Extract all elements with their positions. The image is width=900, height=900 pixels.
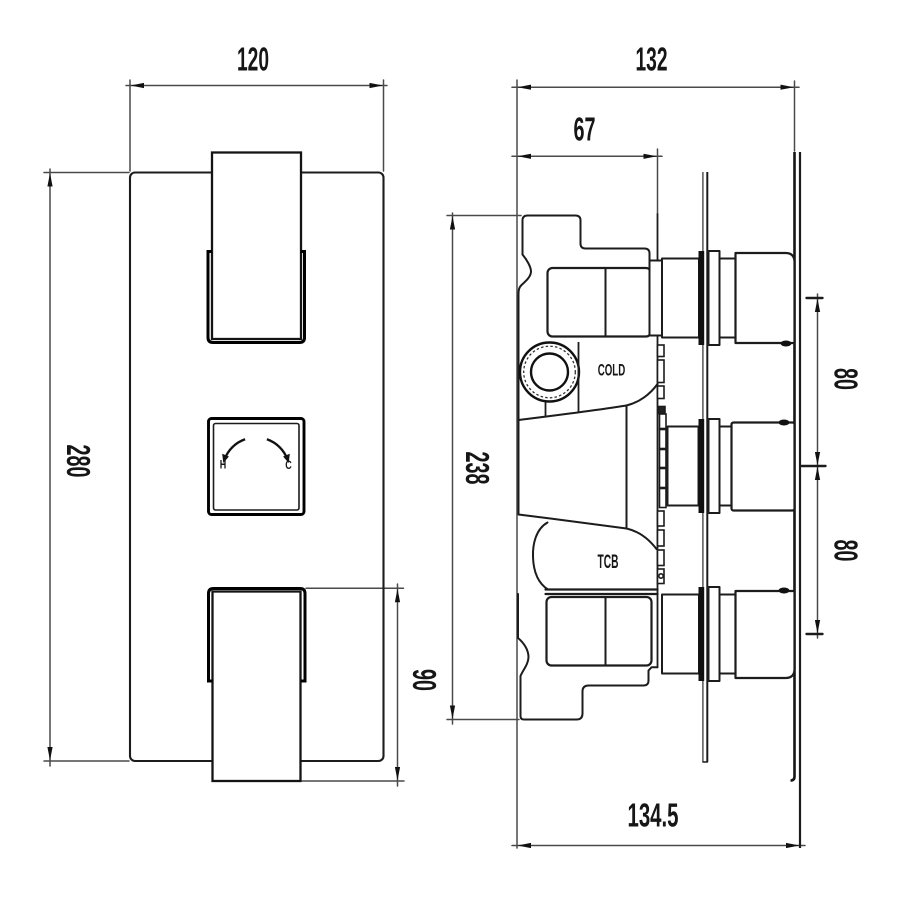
svg-text:67: 67 (574, 111, 596, 148)
svg-text:C: C (285, 458, 292, 472)
svg-text:80: 80 (828, 540, 865, 562)
svg-text:90: 90 (406, 669, 443, 691)
svg-text:COLD: COLD (598, 362, 626, 380)
svg-text:134.5: 134.5 (628, 797, 679, 834)
svg-text:120: 120 (237, 41, 269, 78)
svg-text:H: H (220, 458, 227, 472)
svg-text:132: 132 (636, 41, 668, 78)
svg-text:280: 280 (60, 445, 97, 478)
svg-text:238: 238 (459, 452, 496, 485)
svg-text:80: 80 (828, 368, 865, 390)
svg-text:TCB: TCB (598, 551, 619, 573)
